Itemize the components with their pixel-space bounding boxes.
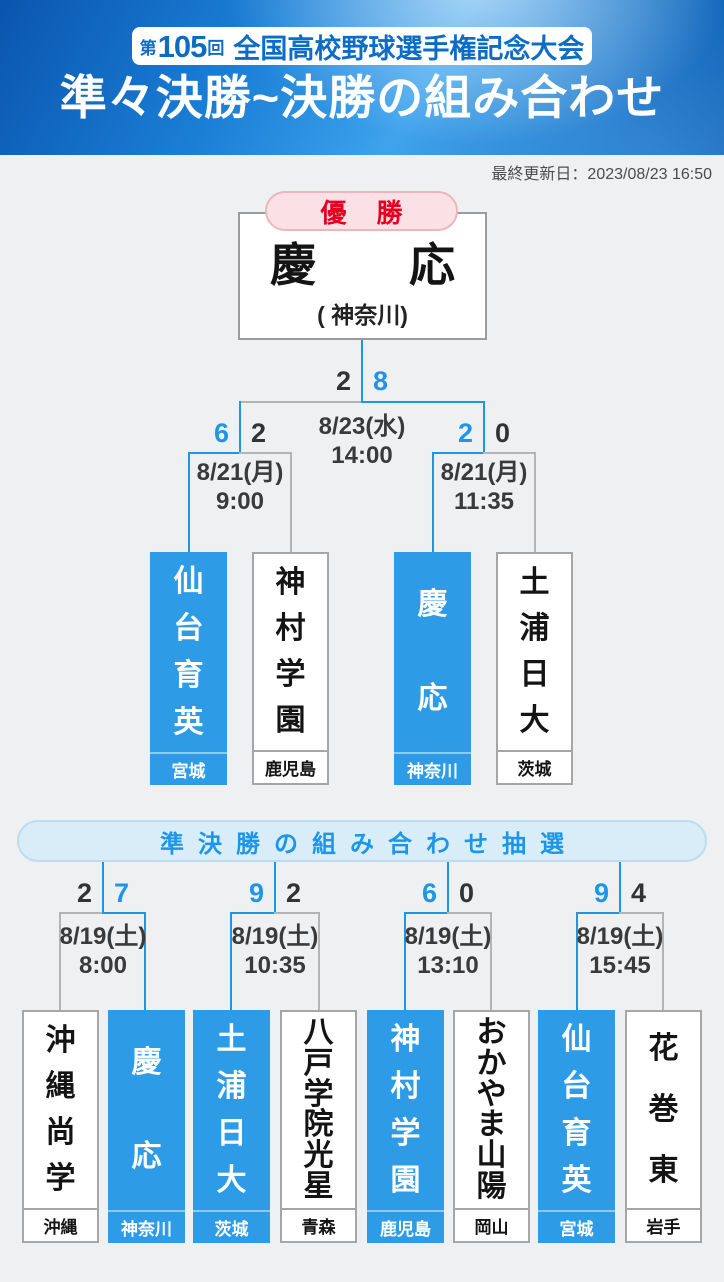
qf4-date-day: 8/19(土) [550, 922, 690, 951]
sf1-score-left: 6 [195, 420, 240, 447]
team-prefecture: 神奈川 [108, 1210, 185, 1243]
sf1-score: 6 2 [195, 420, 285, 447]
sf1-date-day: 8/21(月) [170, 458, 310, 487]
team-prefecture: 沖縄 [24, 1208, 97, 1241]
sf2-date-time: 11:35 [414, 487, 554, 516]
sf2-date: 8/21(月) 11:35 [414, 458, 554, 516]
qf2-score: 9 2 [230, 880, 320, 907]
final-date: 8/23(水) 14:00 [292, 412, 432, 470]
team-prefecture: 宮城 [538, 1210, 615, 1243]
line-sf1-left [188, 452, 241, 454]
qf3-date-time: 13:10 [378, 951, 518, 980]
team-prefecture: 宮城 [150, 752, 227, 785]
line-qf2-right [274, 912, 320, 914]
line-qf2-left [230, 912, 276, 914]
team-prefecture: 青森 [282, 1208, 355, 1241]
qf4-score-right: 4 [620, 880, 665, 907]
qf3-date-day: 8/19(土) [378, 922, 518, 951]
badge-suffix: 回 [207, 34, 224, 59]
team-box-tsuchiura-nichidai-qf: 土浦日大 茨城 [193, 1010, 270, 1243]
page-header: 第105回全国高校野球選手権記念大会 準々決勝~決勝の組み合わせ [0, 0, 724, 155]
team-name: 八戸学院光星 [282, 1012, 355, 1208]
qf2-score-right: 2 [275, 880, 320, 907]
team-name: 神村学園 [367, 1010, 444, 1210]
team-box-tsuchiura-nichidai-sf: 土浦日大 茨城 [496, 552, 573, 785]
sf2-score-left: 2 [439, 420, 484, 447]
qf1-score: 2 7 [58, 880, 148, 907]
team-box-okayama-sanyo: おかやま山陽 岡山 [453, 1010, 530, 1243]
qf3-score: 6 0 [403, 880, 493, 907]
qf4-score: 9 4 [575, 880, 665, 907]
line-sf1-right [239, 452, 292, 454]
final-date-day: 8/23(水) [292, 412, 432, 441]
sf2-score-right: 0 [484, 420, 529, 447]
line-qf3-left [404, 912, 449, 914]
team-box-hachinohe-gakuin-kosei: 八戸学院光星 青森 [280, 1010, 357, 1243]
champion-prefecture: ( 神奈川) [240, 296, 485, 330]
qf2-date: 8/19(土) 10:35 [205, 922, 345, 980]
team-box-keio-sf: 慶応 神奈川 [394, 552, 471, 785]
badge-prefix: 第 [140, 34, 157, 59]
team-name: 仙台育英 [538, 1010, 615, 1210]
team-name: 慶応 [108, 1010, 185, 1210]
team-box-kamimura-gakuen-qf: 神村学園 鹿児島 [367, 1010, 444, 1243]
line-qf4-left [576, 912, 621, 914]
qf1-date-time: 8:00 [33, 951, 173, 980]
line-final-right [361, 401, 485, 403]
qf1-date-day: 8/19(土) [33, 922, 173, 951]
team-prefecture: 鹿児島 [254, 750, 327, 783]
tournament-bracket-page: 第105回全国高校野球選手権記念大会 準々決勝~決勝の組み合わせ 最終更新日：2… [0, 0, 724, 1282]
final-score: 2 8 [317, 368, 407, 395]
team-name: 土浦日大 [498, 554, 571, 750]
team-prefecture: 茨城 [193, 1210, 270, 1243]
champion-name: 慶応 [240, 242, 485, 288]
team-prefecture: 茨城 [498, 750, 571, 783]
team-prefecture: 神奈川 [394, 752, 471, 785]
final-date-time: 14:00 [292, 441, 432, 470]
badge-number: 105 [158, 31, 207, 62]
team-name: 土浦日大 [193, 1010, 270, 1210]
line-qf1-left [59, 912, 104, 914]
sf1-score-right: 2 [240, 420, 285, 447]
sf2-date-day: 8/21(月) [414, 458, 554, 487]
qf1-score-right: 7 [103, 880, 148, 907]
qf2-date-time: 10:35 [205, 951, 345, 980]
line-qf1-right [102, 912, 146, 914]
qf4-date-time: 15:45 [550, 951, 690, 980]
qf2-score-left: 9 [230, 880, 275, 907]
sf1-date-time: 9:00 [170, 487, 310, 516]
team-box-sendai-ikuei-sf: 仙台育英 宮城 [150, 552, 227, 785]
team-name: おかやま山陽 [455, 1012, 528, 1208]
team-name: 慶応 [394, 552, 471, 752]
qf2-date-day: 8/19(土) [205, 922, 345, 951]
final-score-left: 2 [317, 368, 362, 395]
final-score-right: 8 [362, 368, 407, 395]
line-qf4-right [619, 912, 664, 914]
semifinal-draw-banner: 準決勝の組み合わせ抽選 [17, 820, 707, 862]
champion-box: 慶応 ( 神奈川) [238, 212, 487, 340]
team-name: 沖縄尚学 [24, 1012, 97, 1208]
team-box-okinawa-shogaku: 沖縄尚学 沖縄 [22, 1010, 99, 1243]
team-box-kamimura-gakuen-sf: 神村学園 鹿児島 [252, 552, 329, 785]
qf4-date: 8/19(土) 15:45 [550, 922, 690, 980]
line-qf3-right [447, 912, 492, 914]
tournament-badge: 第105回全国高校野球選手権記念大会 [132, 27, 592, 65]
line-sf2-right [483, 452, 536, 454]
team-prefecture: 岩手 [627, 1208, 700, 1241]
champion-label-pill: 優勝 [265, 191, 458, 231]
team-name: 花巻東 [627, 1012, 700, 1208]
qf3-score-right: 0 [448, 880, 493, 907]
team-prefecture: 岡山 [455, 1208, 528, 1241]
badge-title: 全国高校野球選手権記念大会 [233, 27, 584, 66]
line-sf2-left [432, 452, 485, 454]
qf3-score-left: 6 [403, 880, 448, 907]
qf4-score-left: 9 [575, 880, 620, 907]
team-box-keio-qf: 慶応 神奈川 [108, 1010, 185, 1243]
team-prefecture: 鹿児島 [367, 1210, 444, 1243]
qf1-score-left: 2 [58, 880, 103, 907]
line-final-left [240, 401, 362, 403]
sf2-score: 2 0 [439, 420, 529, 447]
last-updated-text: 最終更新日：2023/08/23 16:50 [491, 160, 712, 184]
sf1-date: 8/21(月) 9:00 [170, 458, 310, 516]
team-name: 仙台育英 [150, 552, 227, 752]
team-box-sendai-ikuei-qf: 仙台育英 宮城 [538, 1010, 615, 1243]
qf3-date: 8/19(土) 13:10 [378, 922, 518, 980]
team-name: 神村学園 [254, 554, 327, 750]
qf1-date: 8/19(土) 8:00 [33, 922, 173, 980]
page-title: 準々決勝~決勝の組み合わせ [0, 70, 724, 126]
team-box-hanamaki-higashi: 花巻東 岩手 [625, 1010, 702, 1243]
